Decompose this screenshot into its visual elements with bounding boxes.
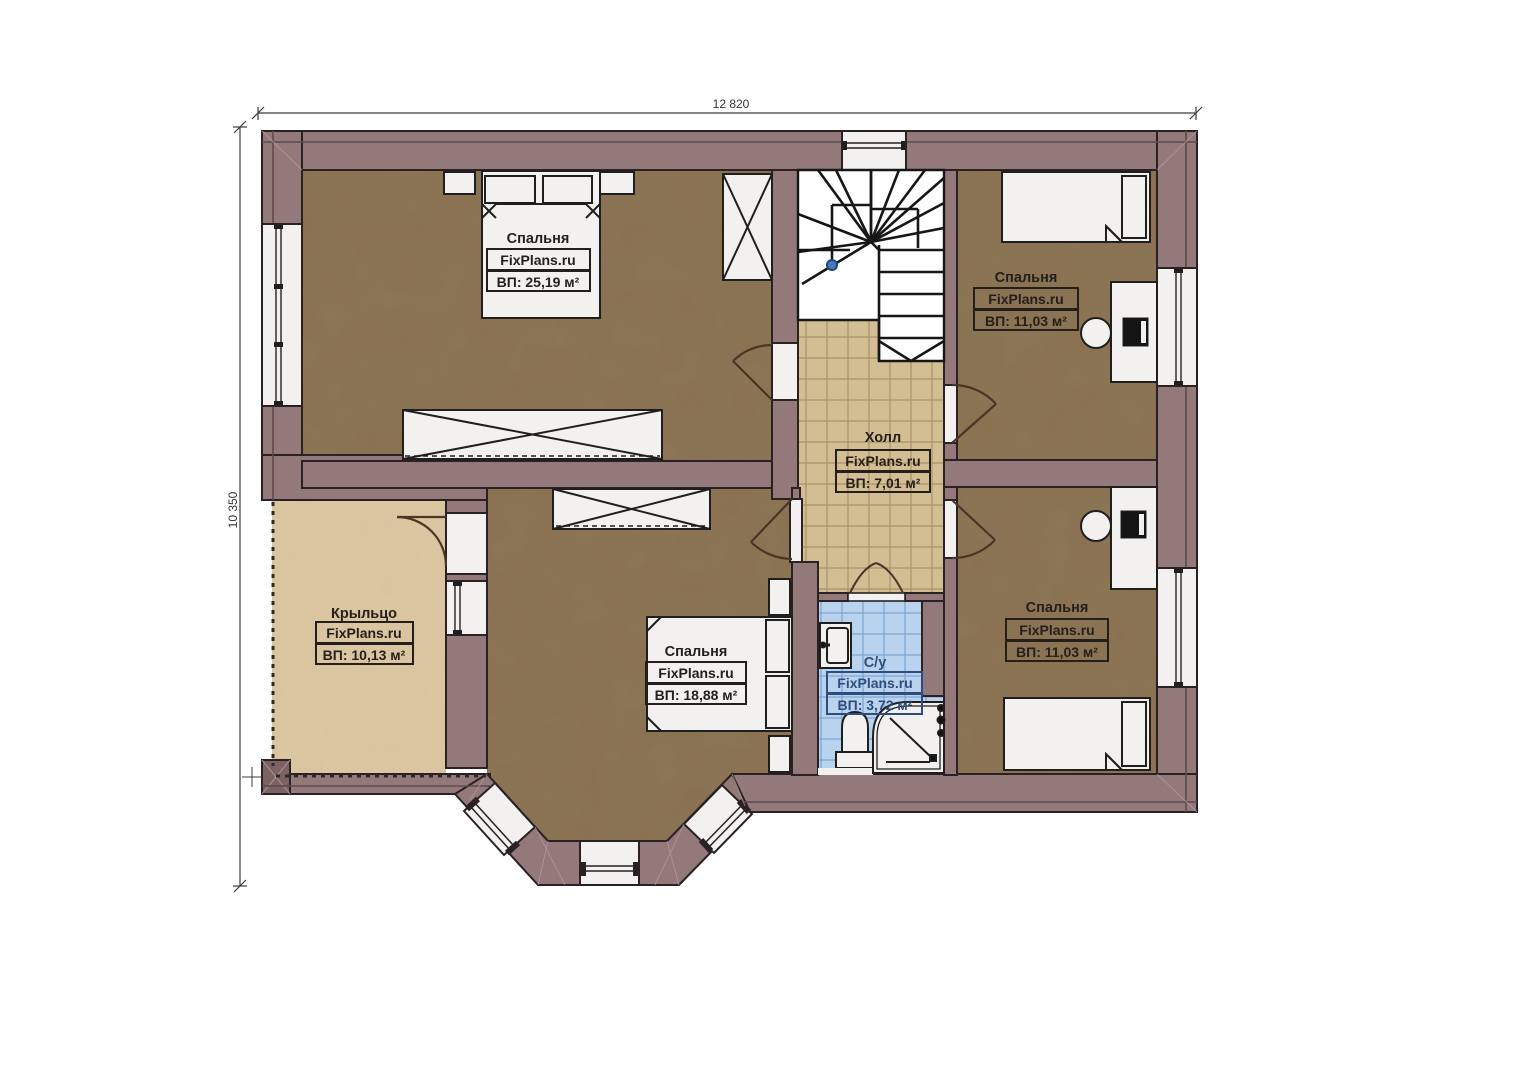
svg-text:FixPlans.ru: FixPlans.ru [500,252,575,268]
svg-text:FixPlans.ru: FixPlans.ru [837,675,912,691]
svg-text:ВП: 25,19 м²: ВП: 25,19 м² [497,274,580,290]
svg-text:FixPlans.ru: FixPlans.ru [988,291,1063,307]
svg-text:Спальня: Спальня [1026,600,1089,616]
svg-text:ВП: 7,01 м²: ВП: 7,01 м² [846,475,921,491]
svg-text:С/у: С/у [864,655,887,671]
svg-text:ВП: 18,88 м²: ВП: 18,88 м² [655,687,738,703]
svg-text:Холл: Холл [865,430,901,446]
svg-text:ВП: 3,72 м²: ВП: 3,72 м² [838,697,913,713]
svg-text:FixPlans.ru: FixPlans.ru [1019,622,1094,638]
svg-text:FixPlans.ru: FixPlans.ru [326,625,401,641]
svg-text:10 350: 10 350 [226,491,240,528]
svg-text:Спальня: Спальня [507,231,570,247]
svg-text:ВП: 10,13 м²: ВП: 10,13 м² [323,647,406,663]
svg-text:Крыльцо: Крыльцо [331,606,397,622]
svg-text:Спальня: Спальня [665,644,728,660]
svg-text:12 820: 12 820 [713,97,750,111]
svg-text:ВП: 11,03 м²: ВП: 11,03 м² [985,313,1067,329]
svg-text:FixPlans.ru: FixPlans.ru [845,453,920,469]
svg-text:Спальня: Спальня [995,270,1058,286]
svg-text:ВП: 11,03 м²: ВП: 11,03 м² [1016,644,1098,660]
svg-text:FixPlans.ru: FixPlans.ru [658,665,733,681]
